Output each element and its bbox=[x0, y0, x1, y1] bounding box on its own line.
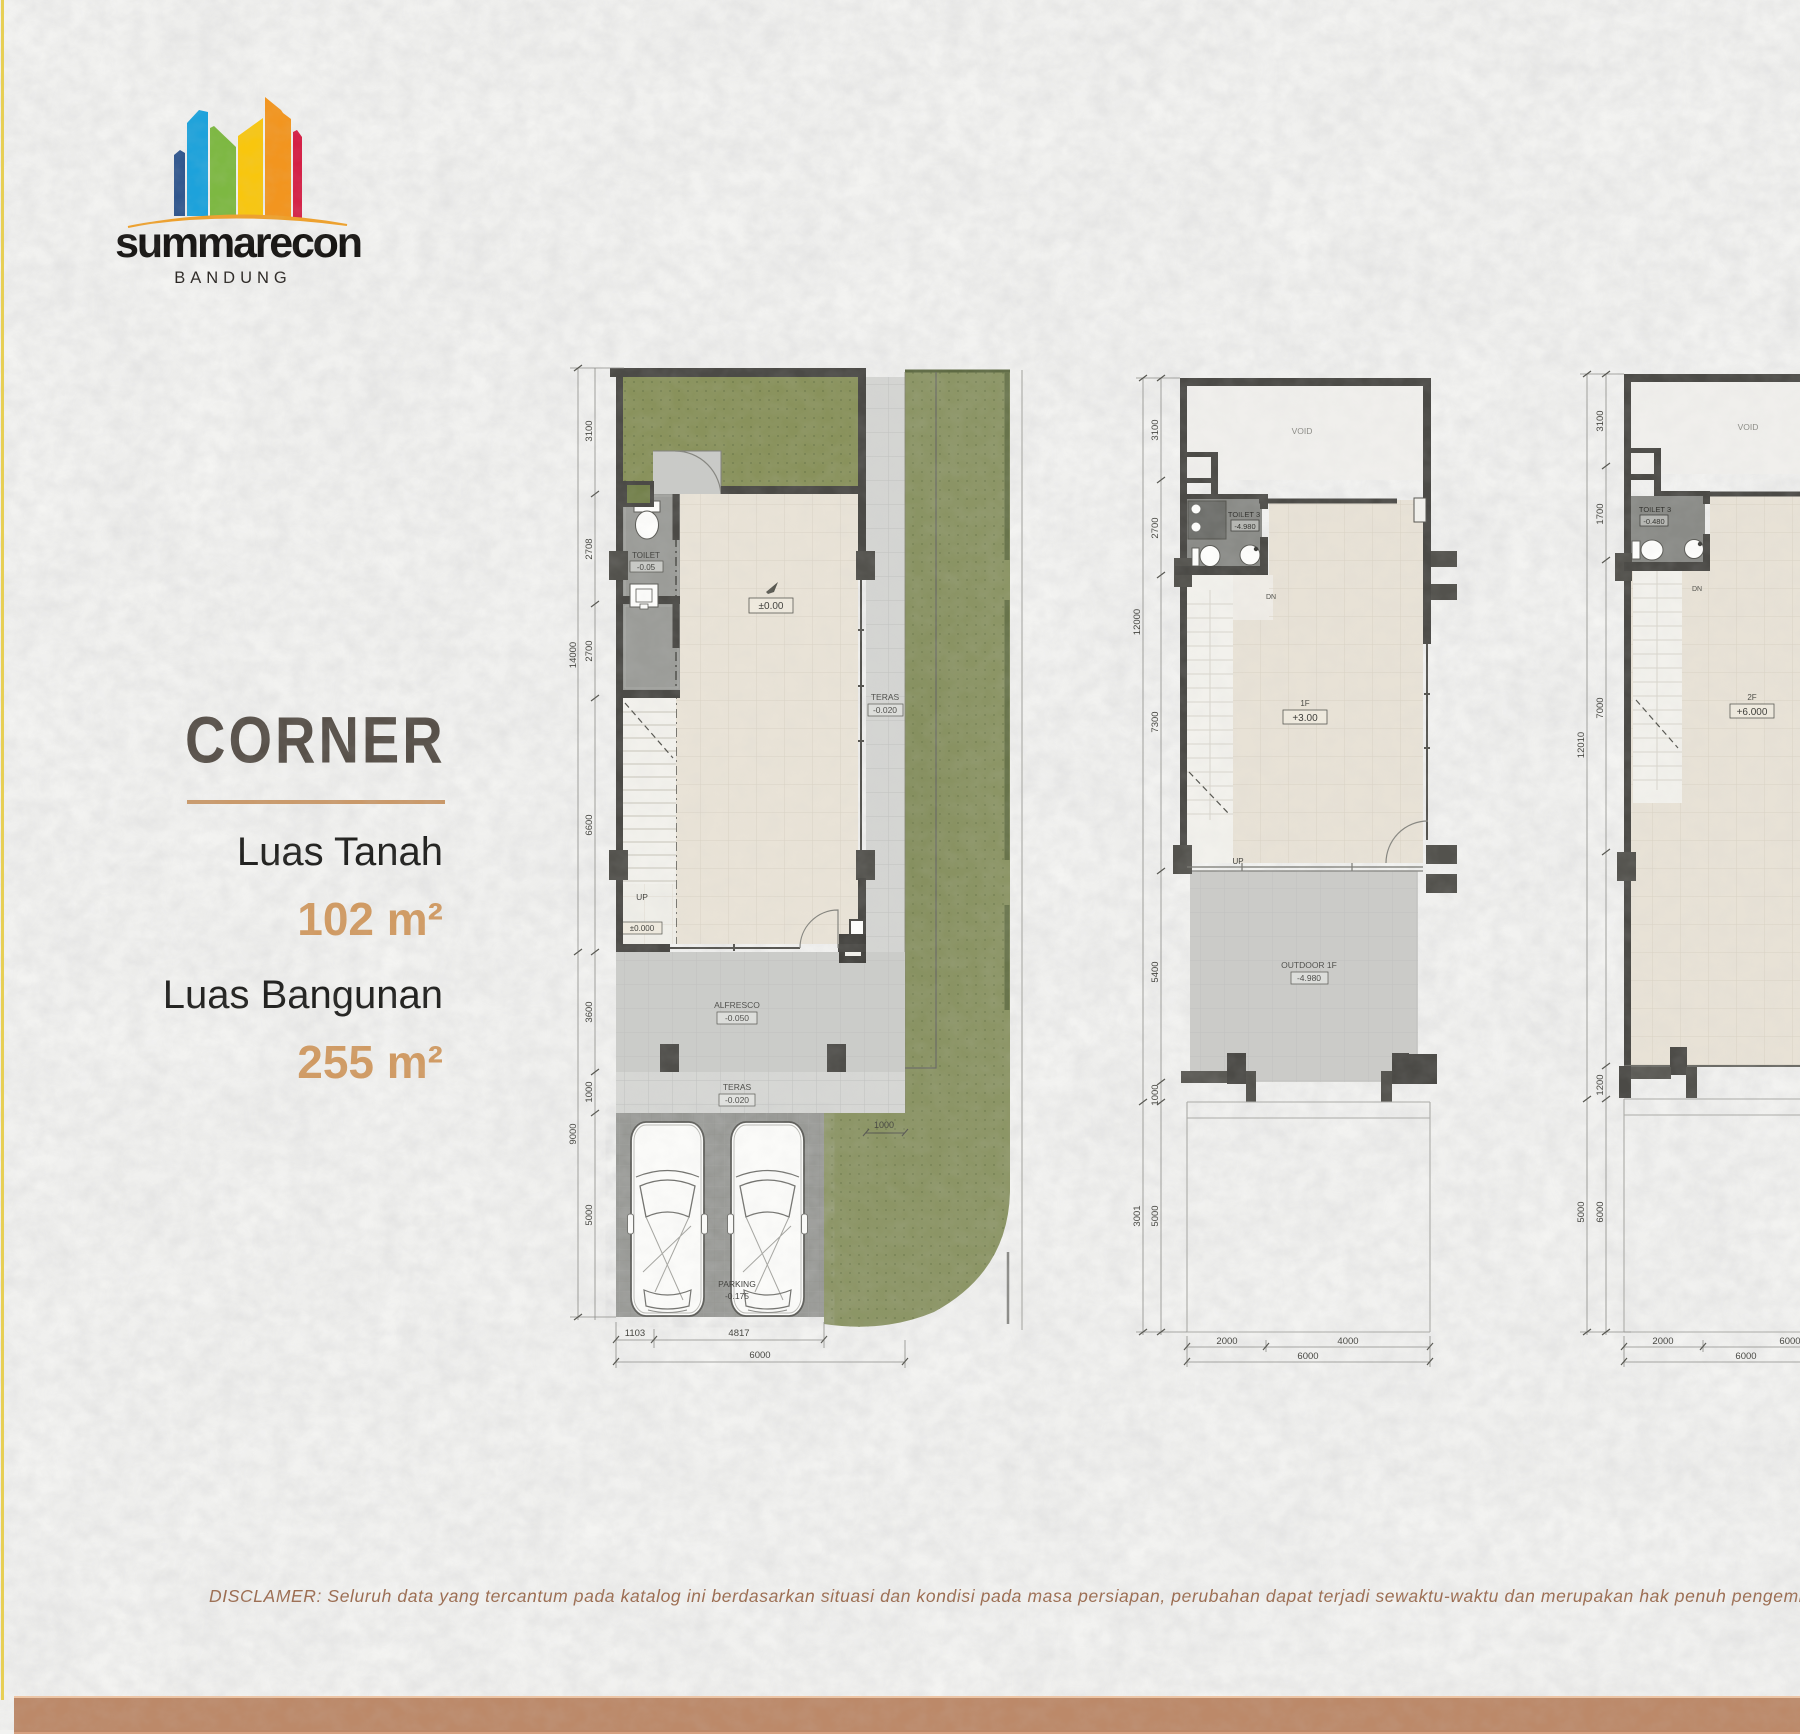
svg-text:-0.020: -0.020 bbox=[873, 705, 897, 715]
svg-text:6000: 6000 bbox=[1735, 1351, 1756, 1362]
svg-text:4817: 4817 bbox=[728, 1328, 749, 1339]
svg-text:TOILET 3: TOILET 3 bbox=[1639, 505, 1671, 514]
svg-text:2700: 2700 bbox=[1150, 517, 1161, 538]
svg-text:1700: 1700 bbox=[1595, 503, 1606, 524]
svg-text:±0.00: ±0.00 bbox=[759, 601, 784, 612]
svg-text:6000: 6000 bbox=[749, 1350, 770, 1361]
svg-text:VOID: VOID bbox=[1292, 426, 1313, 436]
svg-text:4000: 4000 bbox=[1337, 1336, 1358, 1347]
svg-text:DN: DN bbox=[1266, 594, 1276, 601]
svg-text:ALFRESCO: ALFRESCO bbox=[714, 1000, 760, 1010]
svg-text:1F: 1F bbox=[1300, 699, 1309, 708]
svg-text:12010: 12010 bbox=[1576, 732, 1587, 758]
svg-text:5000: 5000 bbox=[1150, 1205, 1161, 1226]
svg-text:DN: DN bbox=[1692, 586, 1702, 593]
svg-text:2700: 2700 bbox=[584, 640, 595, 661]
svg-text:2000: 2000 bbox=[1216, 1336, 1237, 1347]
svg-text:9000: 9000 bbox=[568, 1123, 579, 1144]
svg-text:-0.175: -0.175 bbox=[725, 1291, 749, 1301]
svg-text:+3.00: +3.00 bbox=[1292, 713, 1318, 724]
svg-text:1000: 1000 bbox=[584, 1081, 595, 1102]
svg-text:2708: 2708 bbox=[584, 538, 595, 559]
svg-text:TERAS: TERAS bbox=[723, 1082, 752, 1092]
svg-text:3001: 3001 bbox=[1132, 1205, 1143, 1226]
svg-text:6000: 6000 bbox=[1297, 1351, 1318, 1362]
svg-text:-0.050: -0.050 bbox=[725, 1013, 749, 1023]
svg-text:6000: 6000 bbox=[1595, 1201, 1606, 1222]
svg-text:5400: 5400 bbox=[1150, 961, 1161, 982]
svg-text:VOID: VOID bbox=[1738, 422, 1759, 432]
svg-text:12000: 12000 bbox=[1132, 609, 1143, 635]
svg-text:1200: 1200 bbox=[1595, 1074, 1606, 1095]
svg-text:1103: 1103 bbox=[625, 1328, 645, 1339]
svg-text:6600: 6600 bbox=[584, 814, 595, 835]
svg-text:-0.020: -0.020 bbox=[725, 1095, 749, 1105]
svg-text:OUTDOOR 1F: OUTDOOR 1F bbox=[1281, 960, 1337, 970]
svg-text:3100: 3100 bbox=[1150, 419, 1161, 440]
svg-text:2F: 2F bbox=[1747, 693, 1756, 702]
svg-text:PARKING: PARKING bbox=[718, 1279, 756, 1289]
svg-text:2000: 2000 bbox=[1652, 1336, 1673, 1347]
svg-text:-4.980: -4.980 bbox=[1297, 973, 1321, 983]
svg-text:14000: 14000 bbox=[568, 642, 579, 668]
svg-text:±0.000: ±0.000 bbox=[630, 924, 655, 933]
svg-text:7000: 7000 bbox=[1595, 697, 1606, 718]
svg-text:UP: UP bbox=[636, 892, 648, 902]
svg-text:7300: 7300 bbox=[1150, 711, 1161, 732]
svg-text:TOILET 3: TOILET 3 bbox=[1228, 510, 1260, 519]
svg-text:3600: 3600 bbox=[584, 1001, 595, 1022]
svg-text:TOILET: TOILET bbox=[632, 551, 660, 560]
svg-text:-4.980: -4.980 bbox=[1234, 522, 1255, 531]
svg-text:5000: 5000 bbox=[584, 1204, 595, 1225]
svg-text:5000: 5000 bbox=[1576, 1201, 1587, 1222]
svg-text:6000: 6000 bbox=[1779, 1336, 1800, 1347]
svg-text:1000: 1000 bbox=[1150, 1084, 1161, 1105]
svg-text:3100: 3100 bbox=[1595, 410, 1606, 431]
svg-text:3100: 3100 bbox=[584, 420, 595, 441]
svg-text:-0.05: -0.05 bbox=[637, 563, 656, 572]
svg-text:-0.480: -0.480 bbox=[1643, 517, 1664, 526]
svg-text:+6.000: +6.000 bbox=[1737, 707, 1768, 718]
svg-text:TERAS: TERAS bbox=[871, 692, 900, 702]
svg-text:1000: 1000 bbox=[874, 1120, 894, 1130]
